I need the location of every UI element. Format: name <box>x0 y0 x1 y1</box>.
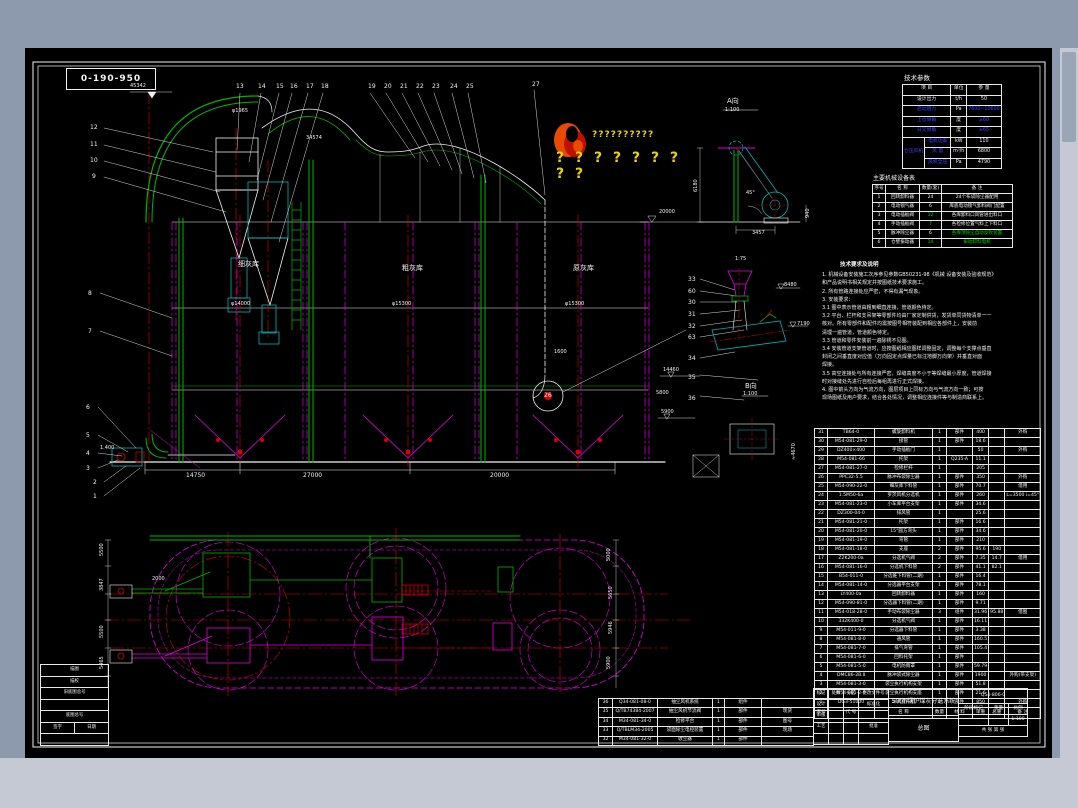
table-cell: PPC32-5.5 <box>828 474 875 483</box>
table-cell <box>989 537 1005 546</box>
table-cell: 1 <box>933 528 947 537</box>
table-cell: 34 <box>599 717 613 726</box>
tech-params-table: 项 目单位参 量设计出力t/h50启动阻力Pa7600~10600上仓倾角度≥6… <box>902 84 1002 169</box>
table-cell: 160 <box>973 591 989 600</box>
table-cell: 4790 <box>967 158 1002 169</box>
table-cell <box>41 734 109 746</box>
table-cell <box>989 501 1005 510</box>
table-cell: 风 量 <box>925 148 951 159</box>
elevator-columns <box>179 160 485 462</box>
table-row: 19M54-081-19-0弯管1部件210 <box>815 537 1041 546</box>
table-row: 仓压风机电机功率kW110 <box>903 137 1002 148</box>
table-cell: 21 <box>815 519 828 528</box>
table-cell: 脉冲袋式除尘器 <box>875 672 933 681</box>
table-cell: 35 <box>599 708 613 717</box>
cyclone-separators <box>216 138 301 344</box>
table-cell: M54-090-22-0 <box>828 483 875 492</box>
table-row: 总图 <box>889 716 959 742</box>
table-cell: Pa <box>951 158 967 169</box>
vertical-scrollbar[interactable] <box>1060 48 1078 758</box>
table-cell: 借图 <box>1005 609 1041 618</box>
table-cell: 分选器平台支架 <box>875 582 933 591</box>
table-row: 33Q/TBLM34-2005袋面除尘电控装置1部件现场 <box>599 727 814 736</box>
table-cell: 库底电动锁气卸料阀门配置 <box>942 203 1013 212</box>
table-cell: 检修栏杆 <box>875 465 933 474</box>
table-cell <box>989 618 1005 627</box>
table-cell <box>989 591 1005 600</box>
table-row: 5M54-081-5-0电机防雨罩1部件59.79 <box>815 663 1041 672</box>
table-row: 设计标准化 <box>814 700 889 711</box>
table-cell <box>829 722 844 733</box>
technical-notes: 技术要求及说明 1. 机械设备安装施工次序参见参数GB50231-98《机械 设… <box>822 261 1024 402</box>
table-cell: 2 <box>933 546 947 555</box>
table-cell: 回料托架 <box>875 654 933 663</box>
table-row: 16M54-081-16-0分选机下料管2部件41.182.1 <box>815 564 1041 573</box>
table-cell: 24个布袋除尘器配用 <box>942 194 1013 203</box>
table-cell: M54-081-27-0 <box>828 465 875 474</box>
table-cell: M54-081-66 <box>828 456 875 465</box>
table-row: 18M54-081-18-0支座2部件95.6190 <box>815 546 1041 555</box>
table-cell: 105.4 <box>973 645 989 654</box>
table-cell: 设计出力 <box>903 95 951 106</box>
table-row: 12M54-090-81-0分选器下料管(二期)1部件9.71 <box>815 600 1041 609</box>
table-cell: 10 <box>815 618 828 627</box>
table-cell <box>1005 654 1041 663</box>
table-cell: 9 <box>815 627 828 636</box>
table-cell: Q54-806-0 <box>959 689 1028 704</box>
table-cell: 回转卸料器 <box>886 194 920 203</box>
scrollbar-thumb[interactable] <box>1062 52 1076 142</box>
note-line: 2. 所有管路连接处应严密，不得有漏气现象。 <box>822 288 1024 296</box>
table-cell: 160.5 <box>973 636 989 645</box>
drawing-number-box: 0-190-950 <box>66 68 156 90</box>
note-line: 4. 图中箭头方向为气流方向，图层项目上同标方向与气流方向一致；可按 <box>822 386 1024 394</box>
table-row: 25M54-090-22-0细灰库下料管1部件70.7借用 <box>815 483 1041 492</box>
table-cell: 排气弯管 <box>875 645 933 654</box>
table-cell: 210 <box>973 537 989 546</box>
table-cell <box>947 465 973 474</box>
table-cell: 1 <box>713 717 725 726</box>
table-cell: ≥60 <box>967 116 1002 127</box>
table-cell: 托架 <box>875 519 933 528</box>
table-row: 2电动锁气器6库底电动锁气卸料阀门配置 <box>873 203 1013 212</box>
table-cell: 3.38 <box>973 627 989 636</box>
table-row: 30M54-081-29-0接管1部件18.6 <box>815 438 1041 447</box>
table-cell <box>844 700 859 711</box>
table-cell: M54-081-5-0 <box>828 663 875 672</box>
table-cell: 部件 <box>947 528 973 537</box>
table-cell: 排风管 <box>875 510 933 519</box>
table-cell: M34-081-32-0 <box>613 736 658 745</box>
table-cell: 回转卸料器 <box>875 591 933 600</box>
table-cell <box>989 474 1005 483</box>
table-cell: 332K400-0 <box>828 618 875 627</box>
table-cell <box>1005 663 1041 672</box>
table-cell: 部件 <box>947 546 973 555</box>
table-cell: 1 <box>933 645 947 654</box>
table-row: 8M54-081-8-0通风管1部件160.5 <box>815 636 1041 645</box>
table-row: 审核 <box>814 711 889 722</box>
table-cell: Q235-A <box>947 456 973 465</box>
table-cell: 检修平台 <box>658 717 713 726</box>
table-cell <box>814 733 829 744</box>
table-cell <box>1005 591 1041 600</box>
table-cell: 110 <box>967 137 1002 148</box>
table-cell: 26 <box>815 474 828 483</box>
table-cell: 分选器下料管 <box>875 627 933 636</box>
table-cell: 82.1 <box>989 564 1005 573</box>
table-cell: 比例 <box>1009 704 1028 715</box>
table-cell: 1 <box>713 708 725 717</box>
table-cell: 部件 <box>947 672 973 681</box>
table-cell: 部件 <box>947 654 973 663</box>
table-cell: M54-018-28-0 <box>828 609 875 618</box>
note-line: 3.3 管道和零件安装前一遍除锈不见图。 <box>822 337 1024 345</box>
table-row: 10332K400-0分选机气阀1部件16.11 <box>815 618 1041 627</box>
table-cell <box>989 447 1005 456</box>
table-cell: 1:100 <box>1009 715 1028 726</box>
table-cell: M54-081-16-0 <box>828 564 875 573</box>
table-row: 28M54-081-66托架1Q235-A11.1 <box>815 456 1041 465</box>
table-cell: L=3500 i=45° <box>1005 492 1041 501</box>
table-cell: B54-011-0 <box>828 573 875 582</box>
table-cell: 分叉倾角 <box>903 127 951 138</box>
table-row: 4DMC86-2B.Ⅱ脉冲袋式除尘器1部件1900外购(带支架) <box>815 672 1041 681</box>
table-cell: 日期 <box>75 722 109 734</box>
table-cell: 8 <box>815 636 828 645</box>
table-row: 上仓倾角度≥60 <box>903 116 1002 127</box>
table-cell: 1 <box>873 194 886 203</box>
table-row: 29DZ400×400手动插板门150外购 <box>815 447 1041 456</box>
table-row: 4手动插板阀7各检修位置气料上下料口 <box>873 221 1013 230</box>
table-cell: 现场 <box>762 727 814 736</box>
note-line: 核对。所有零部件和配件均需按图号相符装配到相应各部件上，安装前 <box>822 320 1024 328</box>
note-line: 焊接。 <box>822 361 1024 369</box>
table-cell: 弯管 <box>875 537 933 546</box>
table-cell: M54-081-23-0 <box>828 501 875 510</box>
table-cell: 13 <box>815 591 828 600</box>
table-cell: 项 目 <box>903 85 951 96</box>
table-row: 22DZ300-04-0排风管125.6 <box>815 510 1041 519</box>
table-cell: 更改文件号 <box>859 689 889 700</box>
table-row: 1:100 <box>959 715 1028 726</box>
table-cell: 1 <box>933 456 947 465</box>
table-cell: 分选器下料管(二期) <box>875 600 933 609</box>
table-cell: 总图 <box>889 716 959 742</box>
table-cell: LY400-0a <box>828 591 875 600</box>
table-cell: 外购 <box>1005 474 1041 483</box>
table-cell: 仓压风机 <box>903 137 925 169</box>
table-cell: 部件 <box>947 627 973 636</box>
table-cell: DZ300-04-0 <box>828 510 875 519</box>
table-cell: 手动插板阀 <box>886 221 920 230</box>
note-line: 1. 机械设备安装施工次序参见参数GB50231-98《机械 设备安装及验收规范… <box>822 271 1024 279</box>
table-row: 共 张 第 张 <box>959 726 1028 737</box>
table-cell: 11 <box>815 609 828 618</box>
table-cell: 1 <box>713 736 725 745</box>
title-block-left: 标记处数分区更改文件号设计标准化审核工艺批准 <box>813 688 889 745</box>
table-row: 17Z2K200-0a分选机气阀2部件7.3514.7借用 <box>815 555 1041 564</box>
table-cell <box>989 465 1005 474</box>
table-cell: 1 <box>933 447 947 456</box>
table-cell: 9.71 <box>973 600 989 609</box>
table-cell: 6800 <box>967 148 1002 159</box>
table-cell <box>1005 438 1041 447</box>
table-cell: 205 <box>973 465 989 474</box>
table-row: 工艺批准 <box>814 722 889 733</box>
table-cell: 18.6 <box>973 438 989 447</box>
table-cell: 2 <box>873 203 886 212</box>
table-cell <box>1005 456 1041 465</box>
table-cell: 1900 <box>973 672 989 681</box>
table-cell: 度 <box>951 127 967 138</box>
note-line: 和产品说明书相关规定并按图纸技术要求施工。 <box>822 279 1024 287</box>
table-cell <box>762 736 814 745</box>
table-cell: 15 <box>815 573 828 582</box>
table-cell: 图号 <box>762 717 814 726</box>
table-cell: 部件 <box>947 600 973 609</box>
table-row: 9M54-011-9-0分选器下料管1部件3.38 <box>815 627 1041 636</box>
table-cell: 31 <box>815 429 828 438</box>
table-cell: 部件 <box>947 618 973 627</box>
note-line: 3. 安装要求： <box>822 296 1024 304</box>
table-cell: 脉冲除尘器 <box>886 230 920 239</box>
table-row: 分叉倾角度≥65 <box>903 127 1002 138</box>
table-cell: 350 <box>973 474 989 483</box>
table-cell: 描图 <box>41 665 109 677</box>
table-cell: 20 <box>815 528 828 537</box>
table-cell <box>1005 618 1041 627</box>
table-cell: 30 <box>815 438 828 447</box>
table-row: 序号名 称数量(套)备 注 <box>873 185 1013 194</box>
table-cell <box>947 510 973 519</box>
table-cell: 6 <box>920 230 942 239</box>
table-cell: 阶段标记 <box>959 704 989 715</box>
table-cell: 7 <box>920 221 942 230</box>
table-cell: M54-081-18-0 <box>828 546 875 555</box>
detail-a-view <box>697 110 806 234</box>
table-cell: 29 <box>815 447 828 456</box>
table-cell: 通风管 <box>875 636 933 645</box>
table-cell: 部件 <box>725 736 762 745</box>
table-cell <box>989 627 1005 636</box>
table-row: 旧底图总号 <box>41 688 109 700</box>
table-cell: 15°圆方弯头 <box>875 528 933 537</box>
table-cell: M54-081-7-0 <box>828 645 875 654</box>
table-cell: 400 <box>973 429 989 438</box>
table-cell <box>829 711 844 722</box>
table-cell: M54-081-6-0 <box>828 654 875 663</box>
table-cell: kW <box>951 137 967 148</box>
note-line: 3.2 平台、栏杆和支吊架等零部件均由厂家定制供货，发货单同货物清单一一 <box>822 312 1024 320</box>
silo-centerlines <box>149 92 578 468</box>
table-cell: 190 <box>989 546 1005 555</box>
table-cell <box>1005 501 1041 510</box>
table-cell: Q/TBLM34-2005 <box>613 727 658 736</box>
table-cell: 单位 <box>951 85 967 96</box>
table-cell: 描校 <box>41 676 109 688</box>
table-cell: 16 <box>815 564 828 573</box>
table-row: 14M54-081-14-0分选器平台支架1部件78.1 <box>815 582 1041 591</box>
table-cell <box>859 733 889 744</box>
table-cell: 部件 <box>947 564 973 573</box>
table-row: 23M54-081-23-0小车库平台支架1部件34.6 <box>815 501 1041 510</box>
table-cell: 标记 <box>814 689 829 700</box>
table-row <box>41 699 109 711</box>
table-cell: 分选机下料管 <box>875 564 933 573</box>
table-cell: m³/h <box>951 148 967 159</box>
table-cell: 部件 <box>947 483 973 492</box>
table-cell <box>989 483 1005 492</box>
table-cell <box>1005 537 1041 546</box>
table-cell: 14 <box>920 239 942 248</box>
table-cell: 1 <box>933 483 947 492</box>
table-row: 设计出力t/h50 <box>903 95 1002 106</box>
table-cell: 16.11 <box>973 618 989 627</box>
table-cell <box>1005 627 1041 636</box>
table-cell: 3 <box>933 609 947 618</box>
table-cell <box>989 645 1005 654</box>
table-cell <box>989 573 1005 582</box>
table-cell: 6 <box>815 654 828 663</box>
table-cell: 1 <box>933 672 947 681</box>
table-cell: 参 量 <box>967 85 1002 96</box>
table-cell: 1 <box>933 618 947 627</box>
table-cell: 2 <box>933 555 947 564</box>
table-cell: 接管 <box>875 438 933 447</box>
table-cell: 1 <box>933 510 947 519</box>
table-cell: M54-081-20-0 <box>828 528 875 537</box>
table-cell: 各库顶除尘自动反吹装置 <box>942 230 1013 239</box>
notes-title: 技术要求及说明 <box>840 261 1024 269</box>
table-cell: 12 <box>815 600 828 609</box>
note-line: 3.1 图中表示管道由粗到细直连接，管道颜色待定。 <box>822 304 1024 312</box>
table-cell: 33 <box>599 727 613 736</box>
table-row: 13LY400-0a回转卸料器1部件160 <box>815 591 1041 600</box>
table-cell: 部件 <box>947 429 973 438</box>
table-cell: 1 <box>933 501 947 510</box>
table-cell: M54-090-81-0 <box>828 600 875 609</box>
table-cell: 各检修位置气料上下料口 <box>942 221 1013 230</box>
table-cell <box>844 733 859 744</box>
archive-block: 描图描校旧底图总号底图总号签字日期 <box>40 664 109 746</box>
table-cell: Q/TB74384-2007 <box>613 708 658 717</box>
table-cell: 处数 <box>829 689 844 700</box>
table-cell: 旧底图总号 <box>41 688 109 700</box>
table-row: 50t/h锅炉煤灰分选系统 <box>889 689 959 716</box>
table-row: 27M54-081-27-0检修栏杆1205 <box>815 465 1041 474</box>
table-row: 标记处数分区更改文件号 <box>814 689 889 700</box>
table-cell: 度 <box>951 116 967 127</box>
table-cell: 电机防雨罩 <box>875 663 933 672</box>
table-cell: 34.6 <box>973 501 989 510</box>
table-cell: 分选机气阀 <box>875 555 933 564</box>
table-cell: 设计 <box>814 700 829 711</box>
table-cell <box>829 733 844 744</box>
table-cell: 1 <box>933 591 947 600</box>
table-cell: 36 <box>599 699 613 708</box>
table-row: 241.5M50-6a罗茨风机分选机1部件260L=3500 i=45° <box>815 492 1041 501</box>
table-cell <box>1005 546 1041 555</box>
note-line: 3.4 安装管道支架管道时，应按图纸相应图样调整固定，调整每个支撑点垂直 <box>822 345 1024 353</box>
table-cell: 部件 <box>947 537 973 546</box>
note-line: 清理一遍管道，管道颜色待定。 <box>822 329 1024 337</box>
table-cell: 17 <box>815 555 828 564</box>
table-row: 项 目单位参 量 <box>903 85 1002 96</box>
table-cell <box>1005 465 1041 474</box>
table-cell: 1 <box>933 519 947 528</box>
table-cell: 1 <box>713 699 725 708</box>
bottom-dimension <box>145 462 615 474</box>
table-row: 26PPC32-5.5脉冲布袋除尘器1部件350外购 <box>815 474 1041 483</box>
table-cell: 1 <box>933 636 947 645</box>
table-cell: 细灰库下料管 <box>875 483 933 492</box>
table-cell: 1 <box>713 727 725 736</box>
table-cell: 借用 <box>1005 555 1041 564</box>
table-row: 6仓壁振动器14振动卸料电机 <box>873 239 1013 248</box>
table-cell: 部件 <box>947 636 973 645</box>
table-cell <box>989 715 1009 726</box>
table-cell: 分选机气阀 <box>875 618 933 627</box>
table-cell: 6 <box>920 203 942 212</box>
table-cell <box>989 528 1005 537</box>
table-cell: 启动阻力 <box>903 106 951 117</box>
table-row: 6M54-081-6-0回料托架1部件 <box>815 654 1041 663</box>
table-cell: 1 <box>933 573 947 582</box>
table-cell: 32 <box>599 736 613 745</box>
table-cell: 共 张 第 张 <box>959 726 1028 737</box>
table-cell: 托架 <box>875 456 933 465</box>
table-row: 描校 <box>41 676 109 688</box>
table-cell: 手动插板门 <box>875 447 933 456</box>
table-cell: t/h <box>951 95 967 106</box>
table-row: 签字日期 <box>41 722 109 734</box>
table-cell: 22 <box>815 510 828 519</box>
table-cell: M54-081-14-0 <box>828 582 875 591</box>
table-cell <box>989 492 1005 501</box>
table-cell: 25.6 <box>973 510 989 519</box>
table-cell: 部件 <box>947 663 973 672</box>
plan-view <box>105 528 690 696</box>
table-cell: 上仓倾角 <box>903 116 951 127</box>
table-cell: 小车库平台支架 <box>875 501 933 510</box>
table-cell: 脉冲布袋除尘器 <box>875 474 933 483</box>
table-cell: 1 <box>933 537 947 546</box>
table-cell <box>989 519 1005 528</box>
table-cell <box>859 711 889 722</box>
table-row: 34M34-081-34-0检修平台1部件图号 <box>599 717 814 726</box>
watermark-line2: ··········· <box>594 144 630 149</box>
table-cell: 支座 <box>875 546 933 555</box>
table-cell: 1 <box>933 600 947 609</box>
table-cell: 95.6 <box>973 546 989 555</box>
table-cell <box>829 700 844 711</box>
table-row: Q54-806-0 <box>959 689 1028 704</box>
table-row: 1回转卸料器2424个布袋除尘器配用 <box>873 194 1013 203</box>
table-cell <box>1005 573 1041 582</box>
table-cell: 16.6 <box>973 519 989 528</box>
table-row <box>41 734 109 746</box>
table-cell: 签字 <box>41 722 75 734</box>
table-cell: 24 <box>920 194 942 203</box>
table-row: 21M54-081-21-0托架1部件16.6 <box>815 519 1041 528</box>
table-cell: 18 <box>815 546 828 555</box>
table-cell: 工艺 <box>814 722 829 733</box>
table-cell: 分选锥下料管(二期) <box>875 573 933 582</box>
table-cell <box>989 582 1005 591</box>
table-cell: 5 <box>815 663 828 672</box>
table-cell: 电机功率 <box>925 137 951 148</box>
